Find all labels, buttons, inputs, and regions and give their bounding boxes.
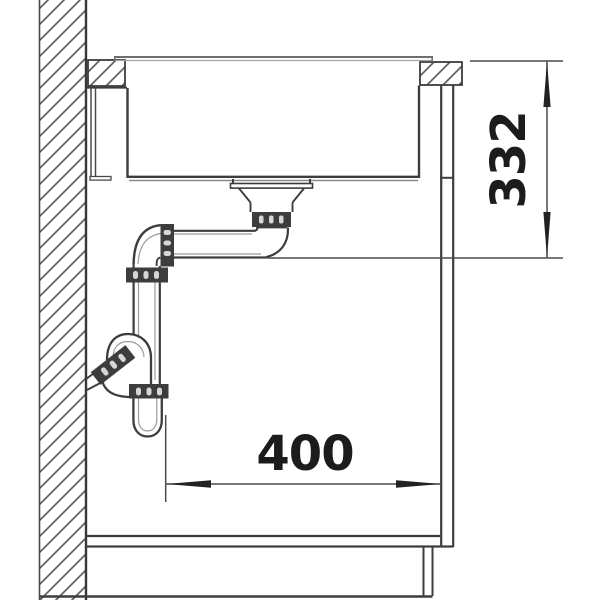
dimension-clearance-label: 400 — [256, 426, 353, 482]
sink-bowl — [87, 86, 419, 181]
strainer-nut-ribs — [259, 216, 284, 224]
arrowhead-up — [543, 61, 550, 107]
trap — [86, 263, 169, 437]
dimension-clearance-400: 400 — [166, 415, 441, 502]
sink-installation-drawing: 332 400 — [0, 0, 600, 600]
dimension-depth-332: 332 — [267, 61, 563, 258]
wall-batten — [90, 88, 111, 180]
wall-hatch — [39, 0, 86, 600]
countertop-left-section — [88, 60, 125, 86]
horizontal-outlet-pipe — [174, 231, 267, 258]
elbow-inner-curve — [157, 258, 161, 267]
strainer-body — [239, 188, 304, 202]
trap-cup-nut-ribs — [136, 388, 162, 396]
countertop-right-section — [420, 62, 462, 85]
plinth — [424, 547, 433, 597]
trap-wall-nut — [91, 345, 136, 385]
cabinet-side-panel — [440, 85, 454, 547]
dimension-depth-label: 332 — [481, 111, 537, 208]
drawing-canvas: 332 400 — [0, 0, 600, 600]
cabinet-bottom-shelf — [86, 536, 454, 547]
arrowhead-down — [543, 212, 550, 258]
sink-rim — [114, 56, 433, 62]
trap-top-nut-ribs — [133, 271, 159, 279]
strainer-flange — [231, 184, 313, 189]
trap-outlet-lower-curve — [102, 380, 129, 398]
arrowhead-right — [396, 480, 441, 487]
strainer — [231, 179, 313, 257]
wall-section — [39, 0, 86, 600]
elbow-outer-curve — [134, 225, 161, 264]
drain-elbow — [134, 224, 174, 267]
arrowhead-left — [166, 480, 211, 487]
tailpipe-bend-outer — [266, 228, 288, 258]
elbow-nut-ribs — [164, 230, 172, 256]
